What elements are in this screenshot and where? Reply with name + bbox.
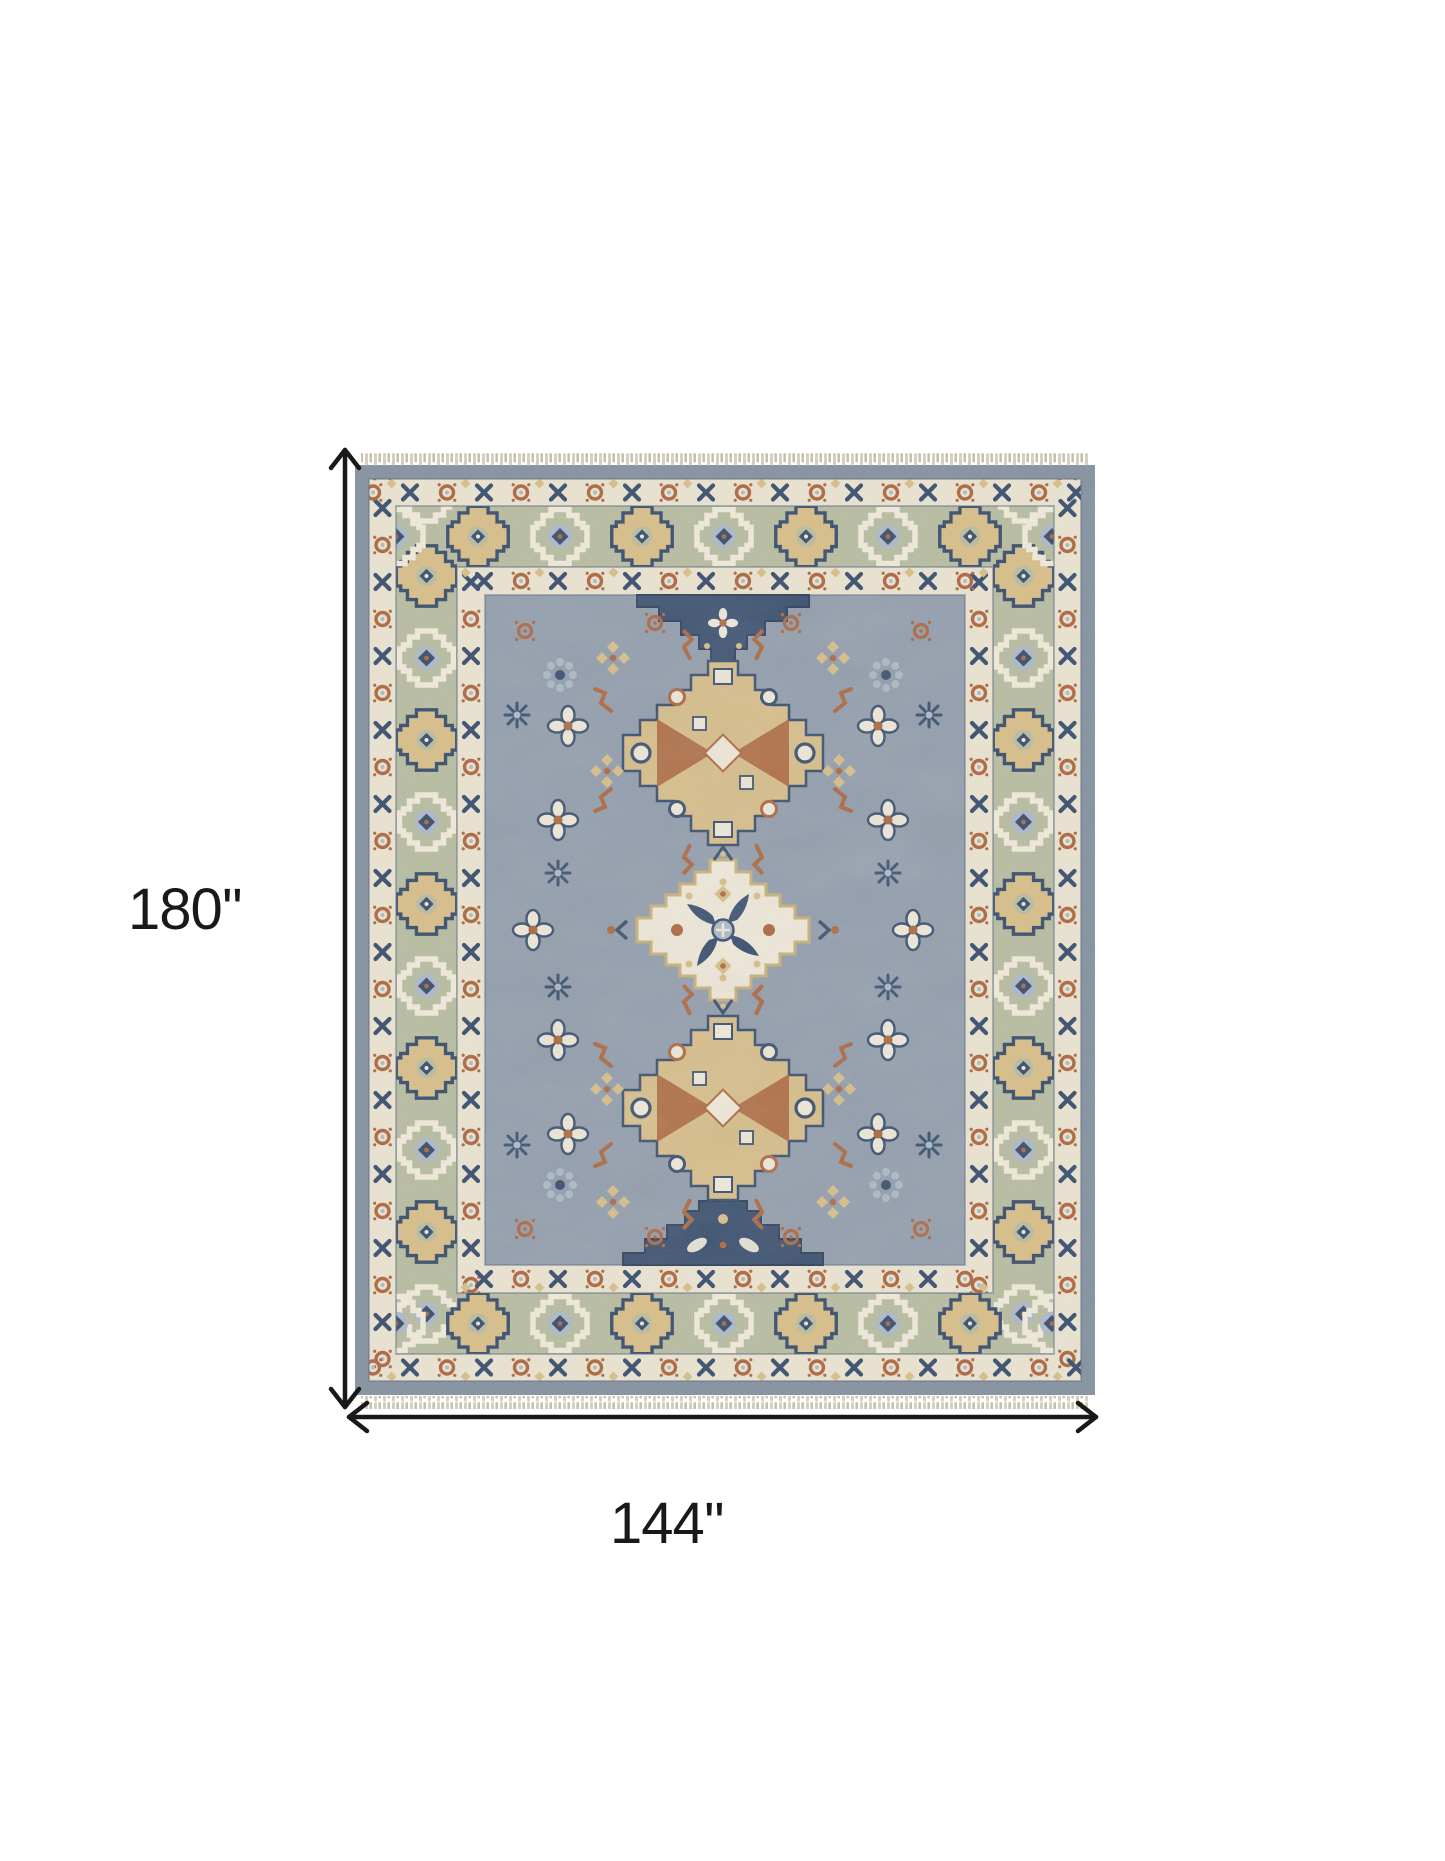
product-dimension-figure: 180'' 144'': [0, 0, 1445, 1861]
rug-fringe-top: [361, 453, 1089, 466]
width-dimension-label: 144'': [594, 1495, 740, 1553]
rug-product-image: [355, 453, 1095, 1409]
height-dimension-label: 180'': [112, 881, 258, 939]
weave-texture: [355, 465, 1095, 1395]
rug-fringe-bottom: [361, 1396, 1089, 1409]
